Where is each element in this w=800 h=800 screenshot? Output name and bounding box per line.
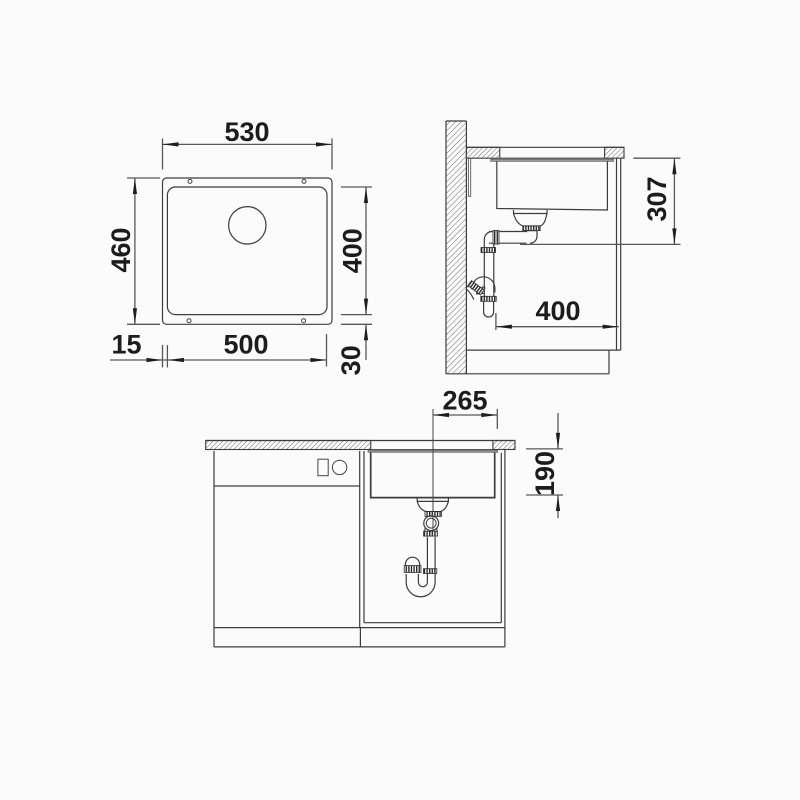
svg-text:30: 30 bbox=[336, 345, 366, 375]
svg-text:400: 400 bbox=[337, 228, 367, 273]
svg-text:15: 15 bbox=[111, 330, 141, 360]
svg-text:190: 190 bbox=[530, 451, 560, 496]
svg-text:265: 265 bbox=[442, 386, 487, 416]
svg-text:460: 460 bbox=[106, 227, 136, 272]
svg-text:530: 530 bbox=[224, 117, 269, 147]
svg-text:400: 400 bbox=[535, 296, 580, 326]
svg-text:500: 500 bbox=[223, 330, 268, 360]
svg-text:307: 307 bbox=[642, 176, 672, 221]
